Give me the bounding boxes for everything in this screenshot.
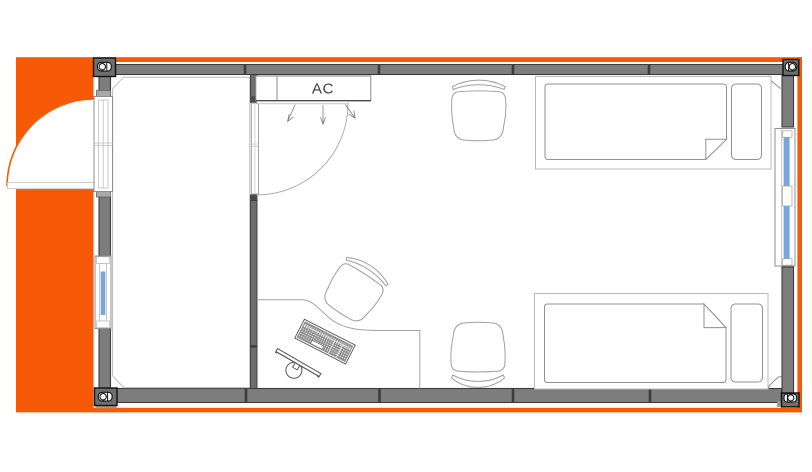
svg-text:AC: AC (312, 80, 334, 97)
